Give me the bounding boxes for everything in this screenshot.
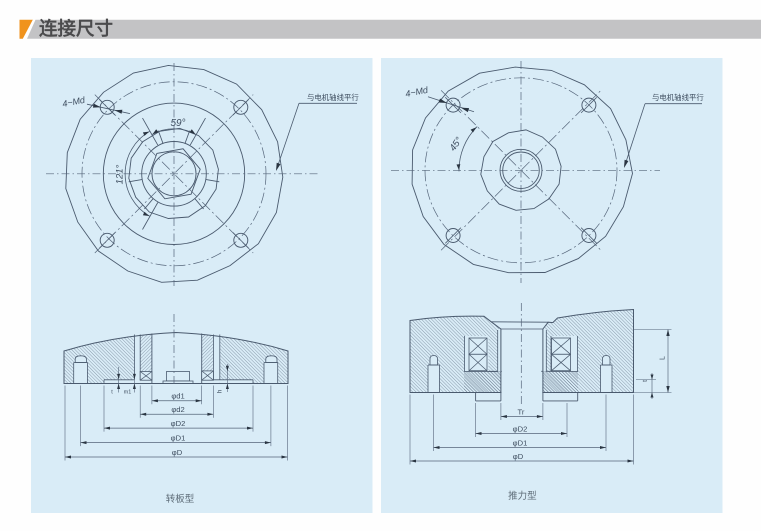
svg-text:121°: 121°	[114, 164, 125, 184]
svg-text:Tr: Tr	[518, 407, 525, 416]
svg-text:连接尺寸: 连接尺寸	[39, 18, 113, 39]
svg-text:h: h	[218, 390, 224, 393]
svg-text:φD1: φD1	[171, 433, 186, 442]
svg-text:φd1: φd1	[171, 392, 184, 401]
svg-text:转板型: 转板型	[166, 493, 195, 505]
svg-text:推力型: 推力型	[508, 490, 537, 502]
svg-text:φD: φD	[172, 448, 183, 457]
svg-text:59°: 59°	[170, 118, 185, 129]
svg-text:与电机轴线平行: 与电机轴线平行	[652, 93, 704, 102]
svg-text:φD2: φD2	[171, 419, 186, 428]
svg-text:t: t	[642, 380, 649, 382]
svg-text:m1: m1	[124, 390, 132, 396]
svg-text:φd2: φd2	[171, 405, 184, 414]
svg-text:与电机轴线平行: 与电机轴线平行	[307, 93, 359, 102]
svg-text:φD2: φD2	[513, 424, 528, 433]
svg-text:φD1: φD1	[513, 438, 528, 447]
svg-text:φD: φD	[513, 452, 524, 461]
svg-text:L: L	[660, 356, 667, 360]
